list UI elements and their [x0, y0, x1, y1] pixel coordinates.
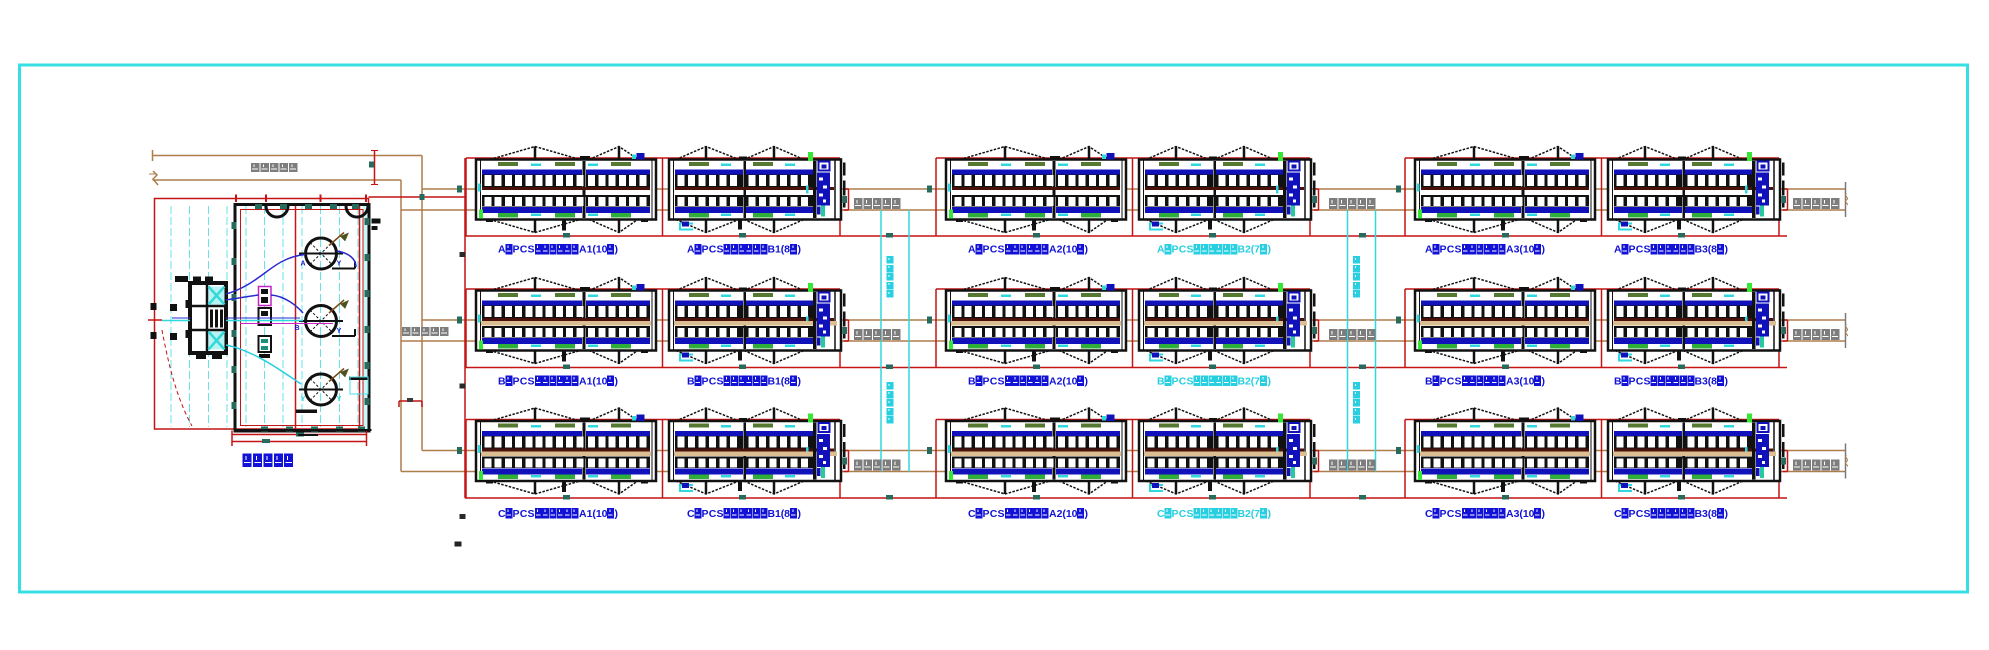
svg-text:Y: Y: [337, 396, 342, 403]
svg-text:): ): [1085, 244, 1089, 256]
svg-text:B3(8: B3(8: [1695, 376, 1718, 388]
svg-text:A2(10: A2(10: [1049, 244, 1078, 256]
svg-text:): ): [798, 244, 802, 256]
svg-text:): ): [615, 508, 619, 520]
svg-text:B3(8: B3(8: [1695, 244, 1718, 256]
svg-text:): ): [1725, 376, 1729, 388]
svg-text:): ): [615, 376, 619, 388]
svg-text:PCS: PCS: [1440, 244, 1462, 256]
svg-text:PCS: PCS: [702, 244, 724, 256]
svg-text:B1(8: B1(8: [768, 376, 791, 388]
svg-text:): ): [1542, 376, 1546, 388]
svg-text:A: A: [1614, 244, 1622, 256]
svg-text:A: A: [1425, 244, 1433, 256]
svg-text:B: B: [687, 376, 695, 388]
svg-text:): ): [1268, 376, 1272, 388]
svg-text:A1(10: A1(10: [579, 508, 608, 520]
svg-text:B2(7: B2(7: [1238, 508, 1261, 520]
svg-text:PCS: PCS: [1172, 508, 1194, 520]
svg-text:B1(8: B1(8: [768, 244, 791, 256]
svg-text:PCS: PCS: [983, 376, 1005, 388]
svg-text:PCS: PCS: [513, 508, 535, 520]
svg-text:): ): [615, 244, 619, 256]
svg-text:): ): [1725, 508, 1729, 520]
svg-text:PCS: PCS: [1172, 376, 1194, 388]
svg-text:): ): [1542, 244, 1546, 256]
svg-text:PCS: PCS: [983, 244, 1005, 256]
svg-text:): ): [1268, 244, 1272, 256]
svg-text:A2(10: A2(10: [1049, 376, 1078, 388]
svg-text:PCS: PCS: [1440, 508, 1462, 520]
svg-text:B2(7: B2(7: [1238, 244, 1261, 256]
svg-text:B3(8: B3(8: [1695, 508, 1718, 520]
svg-text:PCS: PCS: [1440, 376, 1462, 388]
svg-text:PCS: PCS: [702, 376, 724, 388]
svg-text:PCS: PCS: [1629, 508, 1651, 520]
svg-text:C: C: [968, 508, 976, 520]
svg-text:A: A: [1157, 244, 1165, 256]
svg-text:B: B: [498, 376, 506, 388]
svg-text:A: A: [300, 261, 305, 268]
svg-text:B1(8: B1(8: [768, 508, 791, 520]
svg-text:PCS: PCS: [513, 244, 535, 256]
svg-text:A: A: [968, 244, 976, 256]
svg-text:PCS: PCS: [1629, 244, 1651, 256]
svg-text:B: B: [1157, 376, 1165, 388]
svg-text:): ): [1085, 376, 1089, 388]
svg-text:B: B: [1425, 376, 1433, 388]
svg-text:B2(7: B2(7: [1238, 376, 1261, 388]
svg-text:): ): [798, 508, 802, 520]
svg-text:A: A: [687, 244, 695, 256]
svg-text:A1(10: A1(10: [579, 244, 608, 256]
svg-text:Y: Y: [337, 261, 342, 268]
svg-text:A3(10: A3(10: [1506, 376, 1535, 388]
svg-text:C: C: [1157, 508, 1165, 520]
svg-text:B: B: [968, 376, 976, 388]
svg-text:Y: Y: [301, 396, 306, 403]
svg-text:): ): [1268, 508, 1272, 520]
svg-text:B: B: [1614, 376, 1622, 388]
svg-text:PCS: PCS: [513, 376, 535, 388]
svg-text:Y: Y: [337, 328, 342, 335]
svg-text:A3(10: A3(10: [1506, 508, 1535, 520]
svg-text:A: A: [498, 244, 506, 256]
svg-text:PCS: PCS: [1629, 376, 1651, 388]
svg-text:C: C: [687, 508, 695, 520]
svg-text:): ): [1725, 244, 1729, 256]
svg-text:C: C: [498, 508, 506, 520]
svg-text:A2(10: A2(10: [1049, 508, 1078, 520]
svg-text:): ): [1542, 508, 1546, 520]
svg-text:C: C: [1614, 508, 1622, 520]
svg-text:A1(10: A1(10: [579, 376, 608, 388]
svg-text:): ): [798, 376, 802, 388]
svg-text:C: C: [1425, 508, 1433, 520]
svg-text:PCS: PCS: [983, 508, 1005, 520]
svg-text:A3(10: A3(10: [1506, 244, 1535, 256]
svg-text:PCS: PCS: [1172, 244, 1194, 256]
svg-text:B: B: [294, 325, 299, 332]
svg-text:): ): [1085, 508, 1089, 520]
svg-text:PCS: PCS: [702, 508, 724, 520]
